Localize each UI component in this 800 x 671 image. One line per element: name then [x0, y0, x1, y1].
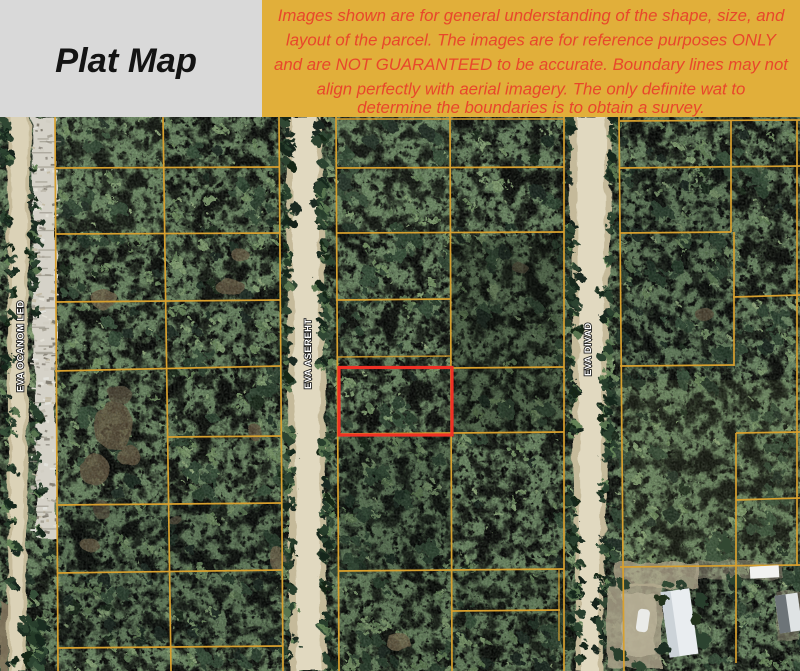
svg-text:Plat Map: Plat Map: [55, 42, 197, 80]
svg-text:layout of the parcel. The imag: layout of the parcel. The images are for…: [286, 31, 778, 50]
svg-text:EVA ASEREHT: EVA ASEREHT: [303, 318, 314, 389]
svg-text:and are NOT GUARANTEED to be a: and are NOT GUARANTEED to be accurate. B…: [274, 55, 789, 74]
svg-text:align perfectly with aerial im: align perfectly with aerial imagery. The…: [317, 80, 746, 99]
svg-text:EVA OCANOM LED: EVA OCANOM LED: [16, 300, 27, 392]
svg-text:Images shown are for general u: Images shown are for general understandi…: [278, 6, 785, 25]
svg-text:EVA DIVAD: EVA DIVAD: [583, 322, 594, 376]
svg-text:determine the boundaries is to: determine the boundaries is to obtain a …: [357, 98, 705, 117]
